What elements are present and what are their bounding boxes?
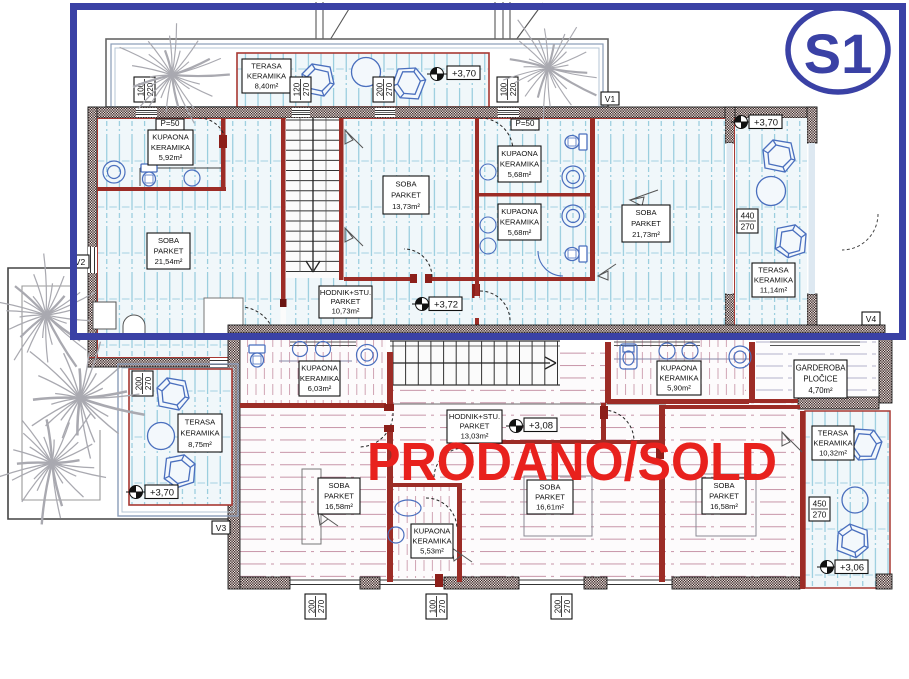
svg-text:5,68m²: 5,68m² — [508, 228, 532, 237]
svg-text:PARKET: PARKET — [324, 492, 354, 501]
svg-text:270: 270 — [144, 376, 153, 390]
svg-text:10,32m²: 10,32m² — [819, 448, 847, 457]
svg-text:220: 220 — [509, 82, 518, 96]
svg-text:+3,70: +3,70 — [150, 487, 174, 498]
svg-text:270: 270 — [813, 511, 827, 520]
svg-text:KUPAONA: KUPAONA — [661, 363, 699, 372]
svg-text:PRODANO/SOLD: PRODANO/SOLD — [367, 432, 777, 492]
svg-text:PLOČICE: PLOČICE — [803, 375, 837, 384]
svg-text:HODNIK+STU.: HODNIK+STU. — [320, 288, 371, 297]
svg-text:KERAMIKA: KERAMIKA — [813, 438, 853, 447]
svg-text:KERAMIKA: KERAMIKA — [180, 429, 220, 438]
svg-text:100: 100 — [428, 599, 437, 613]
svg-text:KERAMIKA: KERAMIKA — [247, 71, 287, 80]
svg-text:270: 270 — [302, 82, 311, 96]
svg-text:200: 200 — [307, 599, 316, 613]
svg-text:KUPAONA: KUPAONA — [501, 207, 539, 216]
svg-text:4,70m²: 4,70m² — [808, 386, 833, 395]
svg-text:100: 100 — [499, 82, 508, 96]
svg-text:PARKET: PARKET — [460, 422, 490, 431]
svg-text:200: 200 — [134, 376, 143, 390]
svg-text:21,54m²: 21,54m² — [155, 257, 183, 266]
svg-text:PARKET: PARKET — [535, 492, 565, 501]
svg-text:KERAMIKA: KERAMIKA — [300, 374, 340, 383]
svg-text:P=50: P=50 — [516, 119, 535, 128]
svg-text:6,03m²: 6,03m² — [308, 384, 332, 393]
svg-text:270: 270 — [563, 599, 572, 613]
svg-text:KERAMIKA: KERAMIKA — [412, 536, 452, 545]
svg-text:270: 270 — [741, 223, 755, 232]
svg-text:PARKET: PARKET — [391, 191, 421, 200]
svg-text:8,75m²: 8,75m² — [188, 440, 212, 449]
svg-text:KERAMIKA: KERAMIKA — [659, 373, 699, 382]
svg-text:21,73m²: 21,73m² — [632, 230, 660, 239]
svg-text:PARKET: PARKET — [709, 492, 739, 501]
svg-text:V3: V3 — [216, 523, 227, 533]
svg-text:KERAMIKA: KERAMIKA — [500, 218, 540, 227]
svg-text:V1: V1 — [605, 94, 616, 104]
svg-text:KUPAONA: KUPAONA — [414, 526, 452, 535]
svg-text:SOBA: SOBA — [635, 208, 657, 217]
svg-text:10,73m²: 10,73m² — [332, 306, 360, 315]
svg-text:+3,72: +3,72 — [434, 299, 458, 310]
svg-text:TERASA: TERASA — [758, 265, 789, 274]
svg-text:P=50: P=50 — [161, 119, 180, 128]
svg-text:HODNIK+STU.: HODNIK+STU. — [449, 412, 500, 421]
svg-text:TERASA: TERASA — [251, 61, 282, 70]
svg-text:+3,08: +3,08 — [529, 420, 553, 431]
svg-text:270: 270 — [385, 82, 394, 96]
svg-text:SOBA: SOBA — [158, 236, 180, 245]
svg-text:8,40m²: 8,40m² — [255, 81, 279, 90]
svg-text:KERAMIKA: KERAMIKA — [500, 160, 540, 169]
svg-text:S1: S1 — [804, 22, 873, 85]
svg-text:SOBA: SOBA — [328, 481, 350, 490]
svg-text:16,58m²: 16,58m² — [325, 502, 353, 511]
svg-text:200: 200 — [375, 82, 384, 96]
svg-text:16,61m²: 16,61m² — [536, 502, 564, 511]
svg-text:+3,70: +3,70 — [452, 68, 476, 79]
svg-text:440: 440 — [741, 212, 755, 221]
svg-text:SOBA: SOBA — [395, 179, 417, 188]
svg-text:270: 270 — [317, 599, 326, 613]
svg-text:+3,70: +3,70 — [754, 117, 778, 128]
svg-text:5,53m²: 5,53m² — [420, 546, 444, 555]
svg-text:KUPAONA: KUPAONA — [152, 133, 190, 142]
svg-text:KERAMIKA: KERAMIKA — [151, 143, 191, 152]
svg-text:450: 450 — [813, 500, 827, 509]
svg-text:16,58m²: 16,58m² — [710, 502, 738, 511]
svg-text:+3,06: +3,06 — [840, 562, 864, 573]
svg-text:5,92m²: 5,92m² — [159, 153, 183, 162]
svg-text:5,90m²: 5,90m² — [667, 383, 691, 392]
svg-text:13,73m²: 13,73m² — [392, 202, 420, 211]
svg-text:5,68m²: 5,68m² — [508, 170, 532, 179]
svg-text:TERASA: TERASA — [818, 428, 849, 437]
svg-text:KERAMIKA: KERAMIKA — [754, 275, 794, 284]
svg-text:270: 270 — [438, 599, 447, 613]
svg-text:11,14m²: 11,14m² — [760, 285, 788, 294]
svg-text:PARKET: PARKET — [631, 219, 661, 228]
svg-text:200: 200 — [553, 599, 562, 613]
svg-text:GARDEROBA: GARDEROBA — [796, 363, 847, 372]
svg-text:120: 120 — [292, 82, 301, 96]
svg-text:V4: V4 — [866, 314, 877, 324]
svg-text:PARKET: PARKET — [154, 247, 184, 256]
svg-text:PARKET: PARKET — [331, 297, 361, 306]
svg-text:KUPAONA: KUPAONA — [501, 149, 539, 158]
svg-text:TERASA: TERASA — [185, 417, 216, 426]
svg-text:KUPAONA: KUPAONA — [301, 364, 339, 373]
